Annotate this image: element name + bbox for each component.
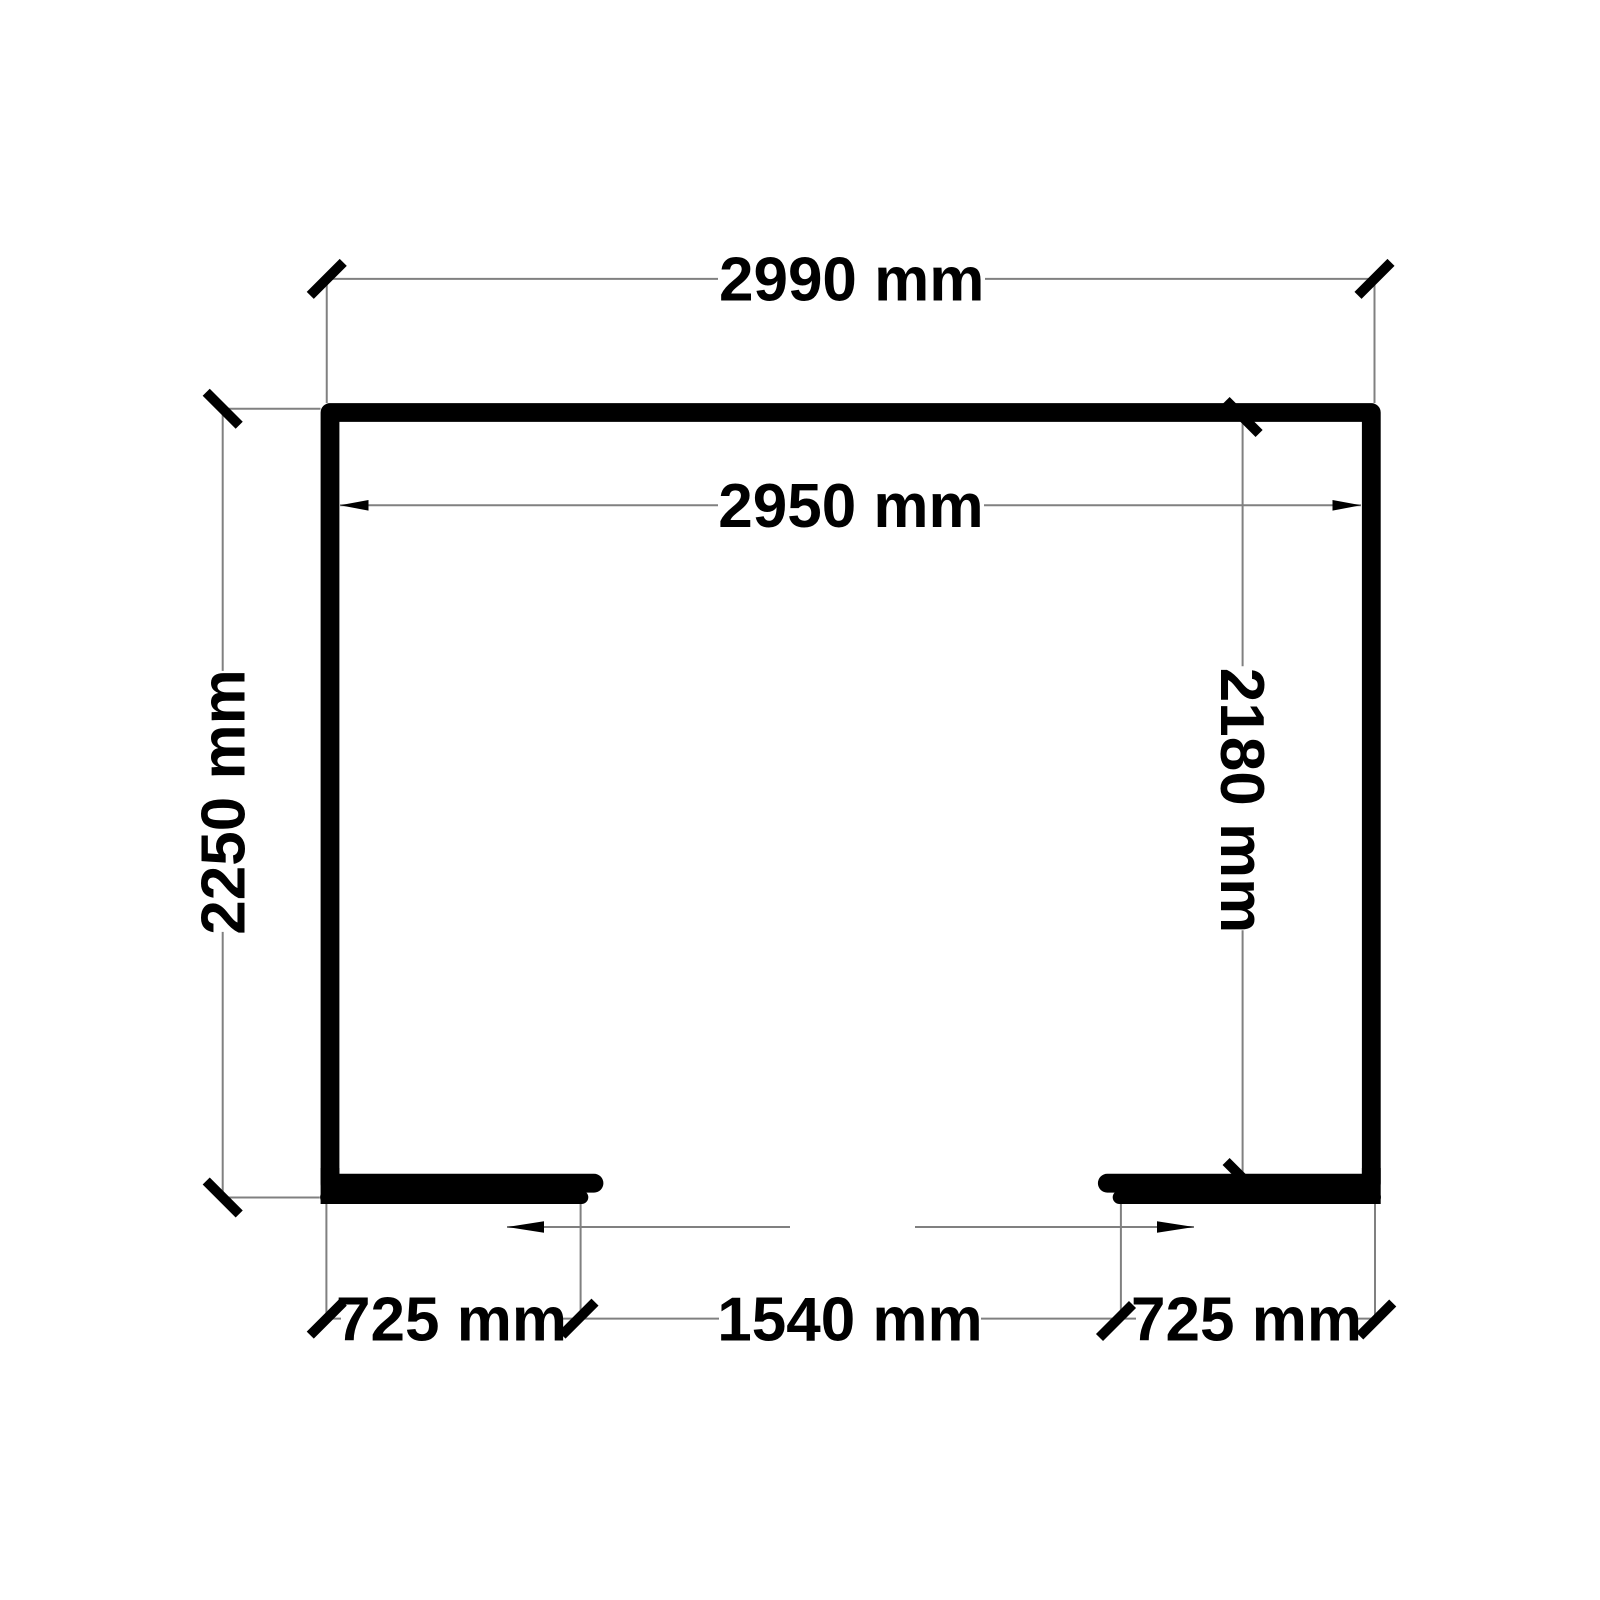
svg-text:2250 mm: 2250 mm xyxy=(189,669,258,934)
svg-text:1540 mm: 1540 mm xyxy=(717,1285,982,1354)
svg-text:725 mm: 725 mm xyxy=(1131,1285,1362,1354)
svg-text:2180 mm: 2180 mm xyxy=(1207,668,1276,933)
svg-text:2950 mm: 2950 mm xyxy=(718,472,983,541)
svg-text:725 mm: 725 mm xyxy=(336,1285,567,1354)
svg-text:2990 mm: 2990 mm xyxy=(719,246,984,315)
